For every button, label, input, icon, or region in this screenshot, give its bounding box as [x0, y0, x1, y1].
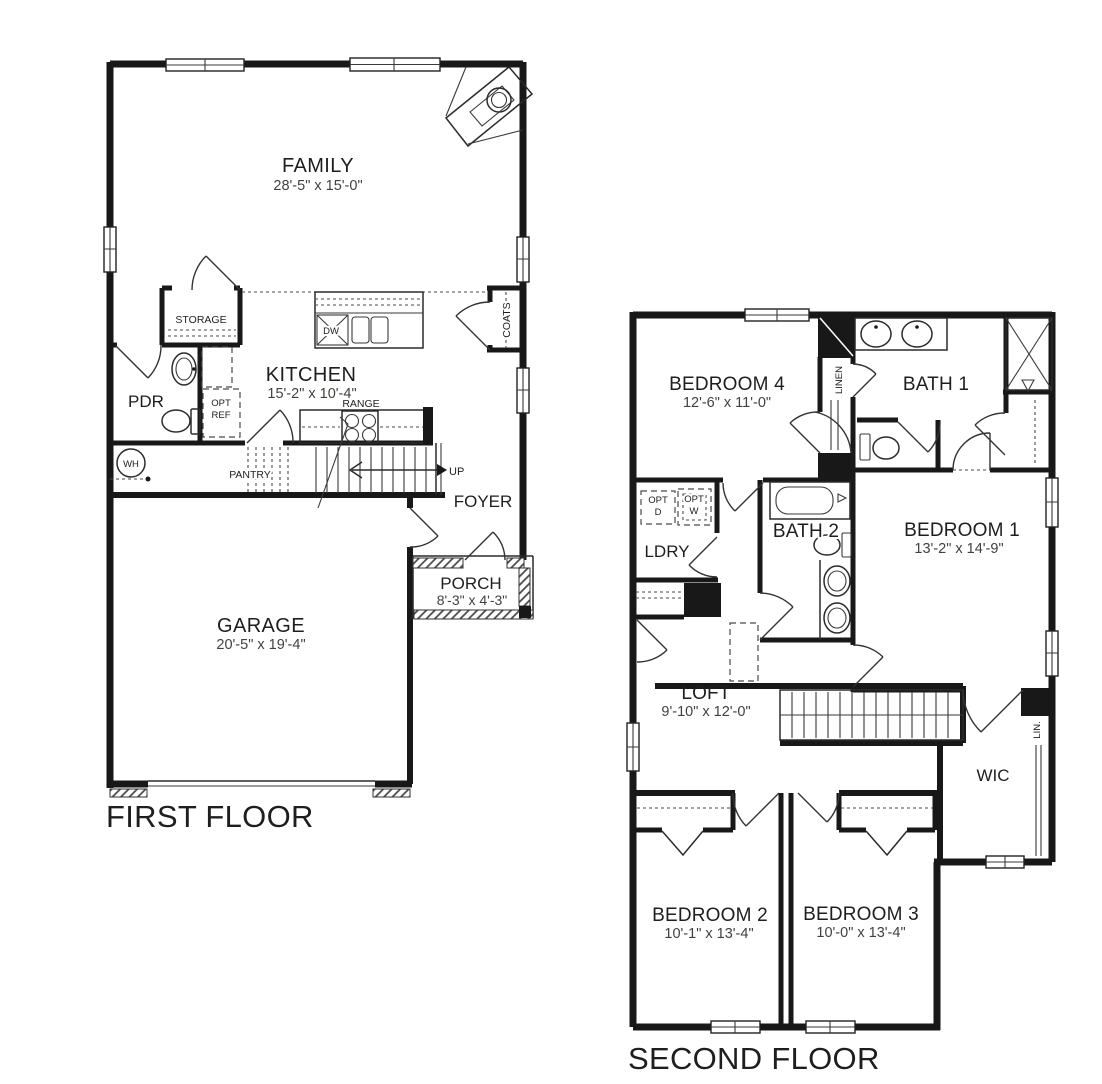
lin-closet-solid — [1021, 688, 1052, 716]
bath1-vanity — [855, 318, 947, 350]
label-dw: DW — [323, 326, 339, 337]
closet-bifold-doors — [662, 831, 703, 855]
room-label-loft: LOFT — [681, 683, 731, 704]
garage-apron-hatch — [110, 789, 147, 797]
bath1-toilet — [860, 434, 899, 460]
porch-hatch — [507, 558, 524, 568]
first-floor-windows — [104, 58, 529, 413]
room-label-kitchen: KITCHEN — [266, 364, 357, 386]
room-label-bedroom2: BEDROOM 2 — [652, 905, 768, 926]
room-label-pdr: PDR — [128, 392, 164, 411]
room-dims-porch: 8'-3" x 4'-3" — [437, 592, 508, 608]
attic-access — [730, 623, 758, 681]
kitchen-island — [315, 292, 423, 348]
label-storage: STORAGE — [175, 314, 226, 326]
label-opt-ref-2: REF — [212, 410, 231, 421]
floor-plan-sheet: FAMILY 28'-5" x 15'-0" KITCHEN 15'-2" x … — [0, 0, 1102, 1084]
label-pantry: PANTRY — [229, 469, 271, 481]
bath2-vanity — [820, 560, 850, 640]
room-dims-bedroom3: 10'-0" x 13'-4" — [816, 925, 905, 941]
room-dims-bedroom4: 12'-6" x 11'-0" — [683, 395, 771, 411]
cabinet-outline — [202, 347, 232, 387]
porch-hatch — [413, 558, 463, 568]
first-floor-title: FIRST FLOOR — [106, 799, 314, 834]
second-floor-title: SECOND FLOOR — [628, 1041, 880, 1076]
room-label-ldry: LDRY — [644, 542, 689, 561]
room-label-bedroom3: BEDROOM 3 — [803, 904, 919, 925]
room-label-garage: GARAGE — [217, 615, 305, 637]
first-floor-plan: FAMILY 28'-5" x 15'-0" KITCHEN 15'-2" x … — [104, 58, 533, 834]
room-label-bath2: BATH 2 — [773, 521, 839, 542]
porch-hatch — [414, 610, 533, 619]
label-linen: LINEN — [834, 366, 845, 394]
room-label-wic: WIC — [976, 766, 1009, 785]
chase-solid — [684, 583, 721, 617]
label-lin: LIN. — [1032, 721, 1043, 738]
room-label-bedroom4: BEDROOM 4 — [669, 374, 785, 395]
pdr-toilet — [162, 409, 200, 434]
label-coats: COATS — [501, 302, 513, 337]
room-dims-family: 28'-5" x 15'-0" — [273, 178, 362, 194]
closet-bifold-doors — [866, 831, 907, 855]
fireplace — [446, 67, 532, 146]
chase-solid — [818, 453, 855, 480]
bath2-tub — [770, 482, 850, 519]
room-label-foyer: FOYER — [454, 492, 513, 511]
first-floor-doors — [115, 256, 505, 560]
floor-plan-drawing: FAMILY 28'-5" x 15'-0" KITCHEN 15'-2" x … — [0, 0, 1102, 1084]
pdr-sink — [172, 353, 196, 385]
room-label-porch: PORCH — [440, 574, 501, 593]
range-counter — [300, 407, 433, 445]
stairs-down — [780, 690, 963, 740]
bath1-shower — [1006, 318, 1052, 391]
room-dims-bedroom2: 10'-1" x 13'-4" — [664, 926, 753, 942]
label-opt-ref-1: OPT — [211, 398, 231, 409]
room-label-bath1: BATH 1 — [903, 374, 969, 395]
room-label-bedroom1: BEDROOM 1 — [904, 520, 1020, 541]
second-floor-plan: BEDROOM 4 12'-6" x 11'-0" BATH 1 BEDROOM… — [627, 309, 1058, 1076]
room-dims-garage: 20'-5" x 19'-4" — [216, 637, 305, 653]
porch-hatch — [519, 568, 530, 606]
label-opt-d-1: OPT — [648, 495, 668, 506]
garage-apron-hatch — [373, 789, 410, 797]
label-up: UP — [449, 466, 464, 478]
room-label-family: FAMILY — [282, 155, 354, 177]
label-wh: WH — [123, 459, 139, 470]
label-range: RANGE — [342, 398, 379, 410]
label-opt-d-2: D — [655, 507, 662, 518]
room-dims-bedroom1: 13'-2" x 14'-9" — [914, 541, 1003, 557]
room-dims-loft: 9'-10" x 12'-0" — [661, 704, 750, 720]
label-opt-w-1: OPT — [684, 494, 704, 505]
label-opt-w-2: W — [690, 506, 699, 517]
